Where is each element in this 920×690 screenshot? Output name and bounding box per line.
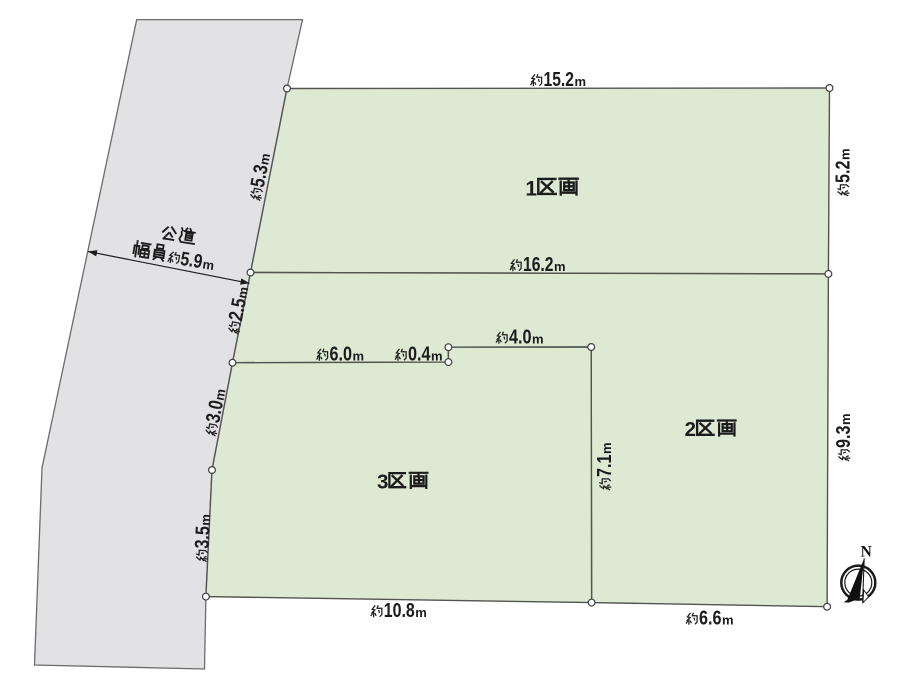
svg-text:2: 2 [685,418,696,441]
svg-text:m: m [353,349,365,364]
svg-text:5.9: 5.9 [179,248,204,273]
svg-text:2.5: 2.5 [225,296,251,322]
svg-text:5.2: 5.2 [832,161,854,184]
svg-text:3.5: 3.5 [191,526,214,550]
svg-text:16.2: 16.2 [523,254,554,276]
svg-text:15.2: 15.2 [544,69,575,91]
svg-text:6.0: 6.0 [330,344,353,366]
svg-text:6.6: 6.6 [699,608,722,630]
svg-text:m: m [431,349,443,364]
svg-text:m: m [838,413,853,425]
svg-text:10.8: 10.8 [384,600,415,622]
svg-text:1: 1 [525,177,537,200]
svg-text:m: m [198,514,214,526]
svg-text:0.4: 0.4 [408,344,431,366]
svg-text:7.1: 7.1 [594,455,616,478]
svg-text:m: m [837,148,852,160]
svg-text:3: 3 [377,471,388,494]
svg-text:3.0: 3.0 [202,398,228,424]
svg-text:m: m [532,332,544,347]
svg-text:m: m [202,256,216,273]
svg-text:m: m [722,613,734,628]
svg-text:m: m [575,74,587,89]
svg-text:4.0: 4.0 [509,327,532,349]
svg-text:m: m [415,605,427,620]
svg-text:N: N [861,543,872,560]
svg-text:m: m [599,442,614,454]
svg-text:9.3: 9.3 [833,426,855,449]
svg-text:5.3: 5.3 [247,163,273,189]
svg-text:m: m [554,259,566,274]
